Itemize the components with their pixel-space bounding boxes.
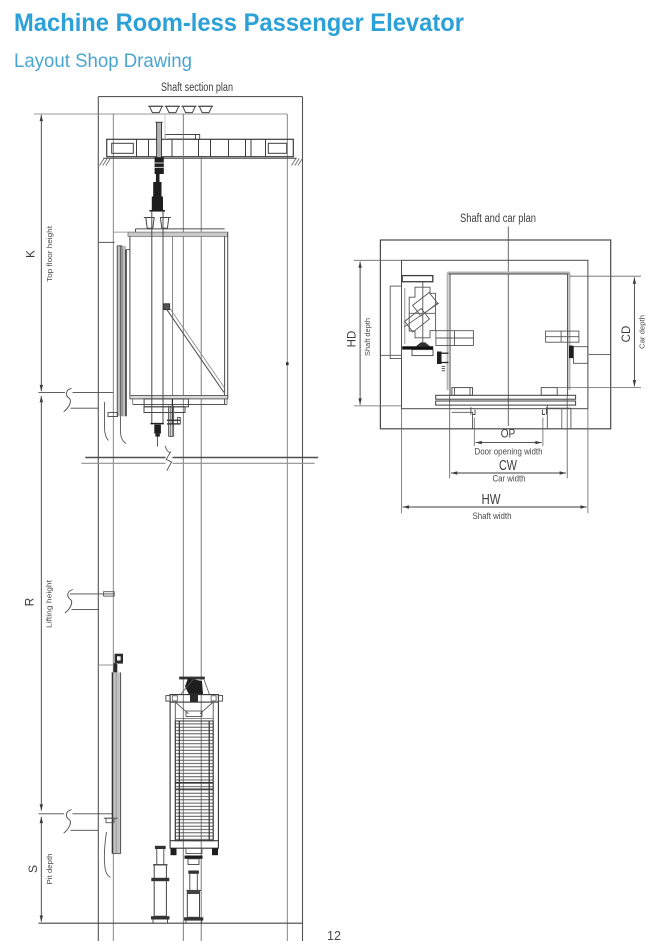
svg-text:Lifting height: Lifting height: [45, 579, 54, 628]
svg-text:Shaft section plan: Shaft section plan: [161, 82, 233, 94]
svg-text:HW: HW: [482, 491, 502, 508]
svg-text:K: K: [24, 250, 38, 258]
svg-text:S: S: [26, 865, 40, 873]
svg-text:Shaft depth: Shaft depth: [363, 318, 372, 356]
svg-text:Shaft and car plan: Shaft and car plan: [460, 213, 536, 225]
svg-text:HD: HD: [347, 331, 359, 348]
svg-text:Shaft width: Shaft width: [473, 511, 512, 521]
svg-text:12: 12: [327, 929, 341, 943]
svg-text:R: R: [23, 597, 37, 606]
svg-text:Pit depth: Pit depth: [45, 854, 54, 885]
svg-text:Machine Room-less Passenger El: Machine Room-less Passenger Elevator: [14, 9, 464, 37]
svg-text:CW: CW: [499, 458, 517, 474]
svg-text:Layout Shop Drawing: Layout Shop Drawing: [14, 50, 192, 72]
svg-text:Top floor height: Top floor height: [45, 225, 54, 282]
svg-text:Door opening width: Door opening width: [475, 446, 543, 456]
svg-text:Car width: Car width: [493, 474, 526, 484]
svg-text:OP: OP: [501, 427, 516, 441]
svg-text:Car depth: Car depth: [638, 315, 647, 349]
svg-text:CD: CD: [621, 326, 633, 343]
